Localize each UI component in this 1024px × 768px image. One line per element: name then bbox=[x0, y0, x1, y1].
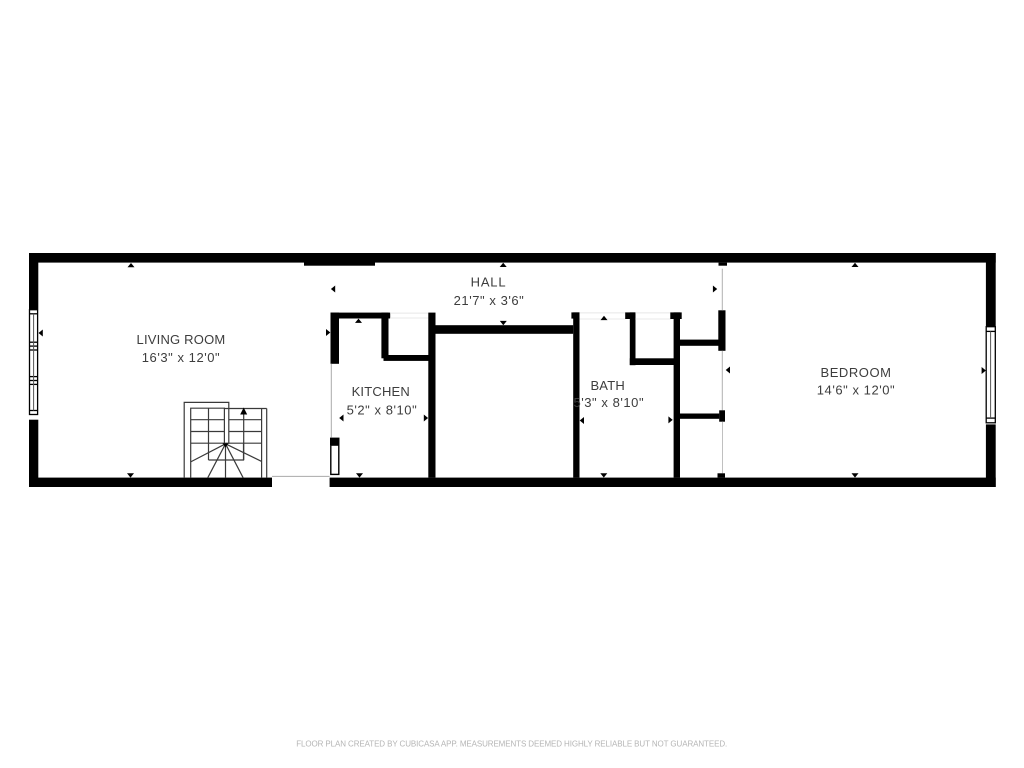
svg-text:KITCHEN: KITCHEN bbox=[352, 384, 410, 399]
svg-text:5'3" x 8'10": 5'3" x 8'10" bbox=[573, 395, 644, 410]
svg-text:21'7" x 3'6": 21'7" x 3'6" bbox=[454, 293, 525, 308]
svg-text:FLOOR PLAN CREATED BY CUBICASA: FLOOR PLAN CREATED BY CUBICASA APP. MEAS… bbox=[296, 740, 727, 749]
svg-text:LIVING ROOM: LIVING ROOM bbox=[137, 332, 226, 347]
svg-text:5'2" x 8'10": 5'2" x 8'10" bbox=[347, 403, 418, 418]
svg-text:HALL: HALL bbox=[471, 275, 507, 290]
svg-text:BATH: BATH bbox=[590, 378, 625, 393]
svg-text:16'3" x 12'0": 16'3" x 12'0" bbox=[142, 350, 220, 365]
svg-text:14'6" x 12'0": 14'6" x 12'0" bbox=[817, 383, 895, 398]
svg-text:BEDROOM: BEDROOM bbox=[820, 365, 891, 380]
